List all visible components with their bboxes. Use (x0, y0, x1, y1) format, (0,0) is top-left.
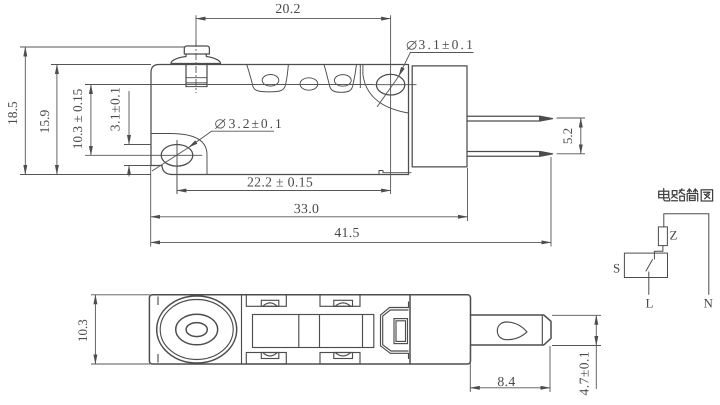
svg-text:41.5: 41.5 (334, 225, 359, 240)
svg-text:18.5: 18.5 (5, 101, 20, 125)
svg-text:L: L (646, 296, 654, 311)
svg-text:33.0: 33.0 (294, 201, 319, 216)
svg-text:4.7±0.1: 4.7±0.1 (577, 351, 592, 396)
svg-text:3.1±0.1: 3.1±0.1 (419, 37, 476, 52)
svg-text:3.1±0.1: 3.1±0.1 (107, 87, 122, 132)
svg-text:5.2: 5.2 (560, 128, 575, 144)
svg-text:N: N (704, 296, 714, 311)
svg-text:15.9: 15.9 (37, 109, 52, 133)
svg-text:3.2±0.1: 3.2±0.1 (229, 116, 284, 131)
svg-text:20.2: 20.2 (275, 1, 300, 16)
svg-text:S: S (613, 261, 620, 276)
svg-text:Z: Z (670, 228, 678, 243)
svg-text:10.3: 10.3 (75, 319, 90, 342)
svg-text:22.2 ± 0.15: 22.2 ± 0.15 (247, 175, 313, 190)
svg-text:10.3 ± 0.15: 10.3 ± 0.15 (70, 88, 85, 149)
svg-text:8.4: 8.4 (497, 374, 515, 389)
